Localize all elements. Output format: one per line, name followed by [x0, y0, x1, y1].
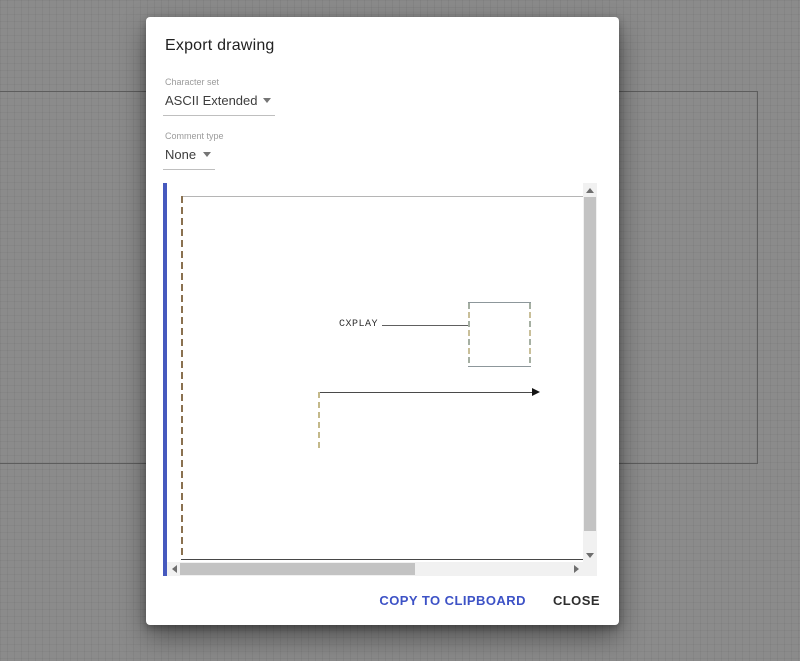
character-set-value: ASCII Extended [165, 93, 258, 108]
chevron-down-icon [263, 98, 271, 103]
scroll-left-button[interactable] [167, 562, 181, 576]
ascii-arrow-line [318, 392, 532, 393]
vertical-scrollbar[interactable] [583, 183, 597, 562]
selection-highlight-bar [163, 183, 167, 576]
ascii-frame-left-dashed-line [181, 196, 183, 560]
character-set-select[interactable]: ASCII Extended [163, 93, 275, 116]
comment-type-label: Comment type [165, 131, 224, 141]
ascii-frame-bottom-line [181, 559, 583, 560]
ascii-box-right-dashes [529, 303, 531, 366]
triangle-down-icon [586, 553, 594, 558]
export-preview-textarea[interactable]: CXPLAY [163, 183, 597, 576]
arrowhead-icon [532, 388, 540, 396]
triangle-up-icon [586, 188, 594, 193]
comment-type-select[interactable]: None [163, 147, 215, 170]
scroll-right-button[interactable] [569, 562, 583, 576]
ascii-arrow-dashed-tail [318, 392, 320, 450]
export-dialog: Export drawing Character set ASCII Exten… [146, 17, 619, 625]
copy-to-clipboard-button[interactable]: COPY TO CLIPBOARD [377, 589, 528, 612]
dialog-actions: COPY TO CLIPBOARD CLOSE [377, 589, 602, 612]
ascii-box [468, 302, 531, 367]
canvas-background: Export drawing Character set ASCII Exten… [0, 0, 800, 661]
scrollbar-corner [583, 562, 597, 576]
triangle-right-icon [574, 565, 579, 573]
ascii-box-label: CXPLAY [339, 319, 378, 330]
ascii-connector-line [382, 325, 468, 326]
chevron-down-icon [203, 152, 211, 157]
horizontal-scrollbar-thumb[interactable] [180, 563, 415, 575]
character-set-label: Character set [165, 77, 219, 87]
vertical-scrollbar-thumb[interactable] [584, 197, 596, 531]
ascii-frame-top-line [181, 196, 583, 197]
scroll-up-button[interactable] [583, 183, 597, 197]
horizontal-scrollbar[interactable] [167, 562, 583, 576]
dialog-title: Export drawing [165, 37, 275, 55]
scroll-down-button[interactable] [583, 548, 597, 562]
triangle-left-icon [172, 565, 177, 573]
ascii-box-left-dashes [468, 303, 470, 366]
comment-type-value: None [165, 147, 196, 162]
close-button[interactable]: CLOSE [551, 589, 602, 612]
